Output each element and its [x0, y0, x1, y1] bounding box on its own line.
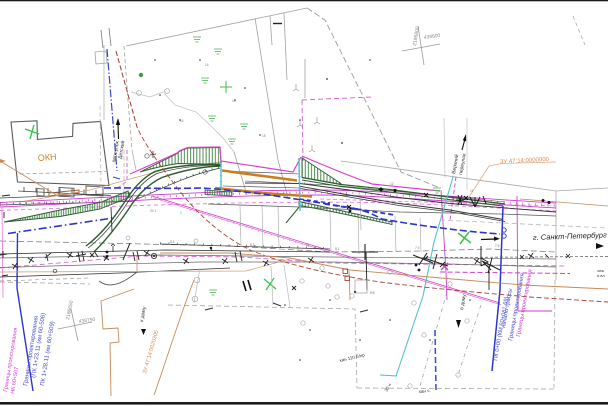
svg-text:7.9: 7.9: [415, 246, 420, 250]
svg-text:15: 15: [262, 134, 266, 138]
svg-text:б/б: б/б: [370, 291, 375, 295]
svg-text:б1: б1: [306, 243, 310, 247]
svg-text:н.вл: н.вл: [597, 273, 605, 278]
svg-text:12: 12: [390, 182, 394, 186]
svg-text:7.8: 7.8: [495, 244, 500, 248]
svg-text:1: 1: [180, 211, 182, 215]
svg-text:ОКН: ОКН: [37, 152, 56, 163]
svg-text:14: 14: [302, 181, 306, 185]
svg-text:8.2: 8.2: [250, 243, 255, 247]
svg-text:14: 14: [205, 63, 209, 67]
svg-text:11: 11: [470, 189, 474, 193]
svg-text:20 1: 20 1: [150, 209, 156, 213]
svg-text:8.1: 8.1: [335, 247, 340, 251]
svg-text:8.4: 8.4: [170, 240, 175, 244]
svg-text:кан ч.: кан ч.: [419, 388, 431, 394]
